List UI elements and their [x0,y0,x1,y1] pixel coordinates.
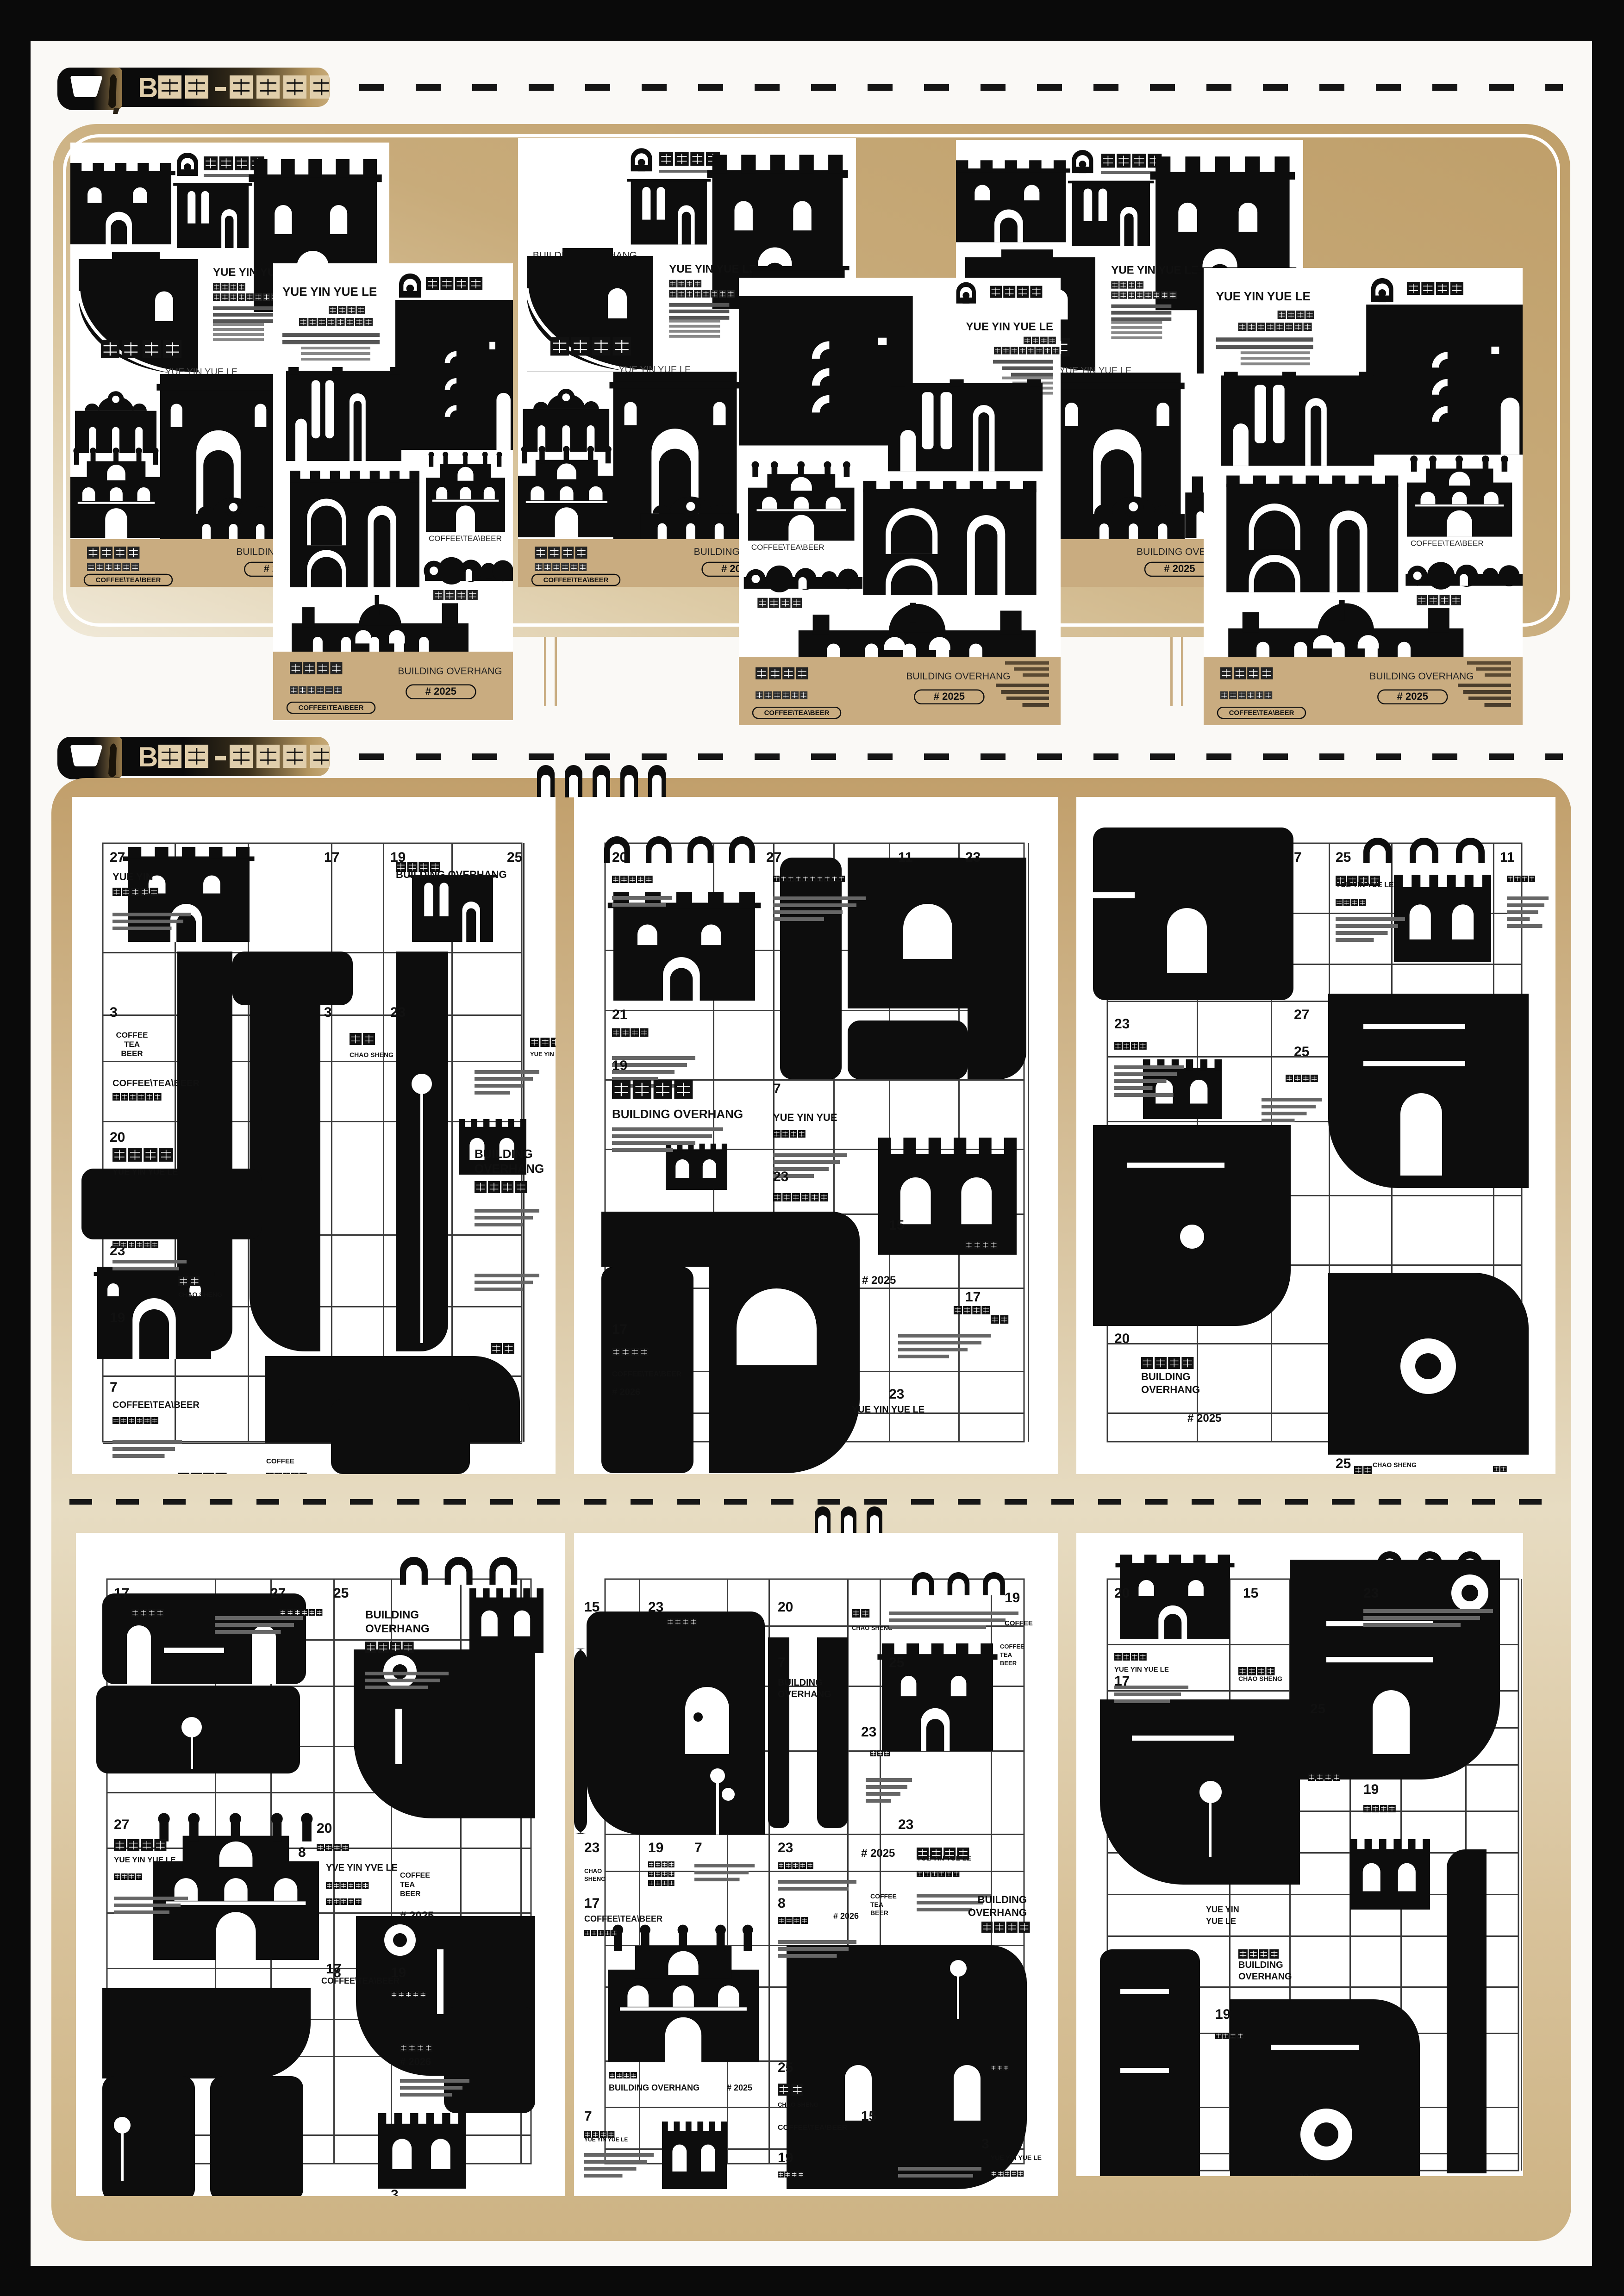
svg-text:20: 20 [1114,1586,1130,1601]
svg-text:COFFEE: COFFEE [116,1031,148,1039]
svg-text:YUE YIN: YUE YIN [112,871,153,883]
svg-text:COFFEE: COFFEE [400,1872,430,1879]
svg-text:YVE YIN YVE LE: YVE YIN YVE LE [326,1863,398,1873]
svg-text:COFFEE\TEA\BEER: COFFEE\TEA\BEER [1411,539,1484,548]
svg-text:COFFEE: COFFEE [1000,1643,1024,1650]
svg-text:7: 7 [584,2109,592,2124]
svg-text:23: 23 [889,1387,904,1402]
svg-text:25: 25 [1336,1456,1351,1471]
svg-text:B: B [138,72,158,103]
svg-text:OVERHANG: OVERHANG [475,1162,544,1176]
svg-text:19: 19 [110,1310,125,1325]
svg-text:23: 23 [861,1724,876,1740]
svg-text:# 2025: # 2025 [1397,691,1428,702]
svg-text:25: 25 [889,1655,904,1670]
svg-text:25: 25 [1310,1701,1325,1717]
svg-text:25: 25 [778,2060,793,2075]
svg-text:COFFEE: COFFEE [870,1892,897,1900]
svg-text:20: 20 [317,1821,332,1836]
svg-text:23: 23 [648,1599,663,1615]
svg-text:OVERHANG: OVERHANG [968,1907,1027,1918]
svg-text:OVERHANG: OVERHANG [1141,1384,1200,1395]
svg-text:COFFEE\TEA\BEER: COFFEE\TEA\BEER [96,576,161,584]
svg-text:COFFEE\TEA\BEER: COFFEE\TEA\BEER [112,1078,200,1089]
svg-text:23: 23 [898,1817,913,1832]
svg-text:27: 27 [114,1817,129,1832]
svg-text:25: 25 [1336,850,1351,865]
svg-text:7: 7 [1294,850,1302,865]
svg-text:OVERHANG: OVERHANG [365,1623,430,1635]
svg-text:23: 23 [1114,1016,1130,1032]
svg-text:# 2025: # 2025 [861,1847,895,1860]
svg-text:25: 25 [333,1586,349,1601]
svg-text:CHAO: CHAO [584,1867,602,1874]
svg-text:23: 23 [773,1169,788,1184]
svg-text:23: 23 [584,1840,600,1855]
svg-text:COFFEE\TEA\BEER: COFFEE\TEA\BEER [543,576,609,584]
svg-text:BUILDING OVERHANG: BUILDING OVERHANG [609,2083,700,2092]
svg-text:23: 23 [1363,1586,1379,1601]
svg-text:# 2025: # 2025 [1289,2172,1320,2176]
svg-text:BUILDING: BUILDING [978,1894,1027,1905]
svg-text:YUE YIN YUE LE: YUE YIN YUE LE [584,2136,628,2143]
svg-text:25: 25 [507,850,522,865]
svg-text:15: 15 [1243,1586,1258,1601]
svg-text:COFFEE\TEA\BEER: COFFEE\TEA\BEER [584,1914,662,1923]
svg-text:17: 17 [324,850,339,865]
svg-text:3: 3 [391,2187,399,2196]
svg-text:SHENG: SHENG [584,1875,606,1882]
svg-text:YUE YIN YUE LE: YUE YIN YUE LE [530,1051,556,1058]
svg-text:CHAO SHENG: CHAO SHENG [1373,1461,1417,1468]
svg-text:YUE YIN YUE LE: YUE YIN YUE LE [1216,289,1311,303]
svg-text:YUE LE: YUE LE [1206,1916,1236,1926]
svg-text:23: 23 [965,850,981,865]
svg-text:7: 7 [778,1655,786,1670]
svg-text:TEA: TEA [400,1881,415,1889]
svg-text:19: 19 [778,2150,793,2165]
svg-text:17: 17 [965,1289,981,1305]
svg-text:COFFEE\TEA\BEER: COFFEE\TEA\BEER [299,704,364,712]
svg-text:YUE YIN YUE LE: YUE YIN YUE LE [1114,1666,1169,1674]
svg-text:3: 3 [324,1005,332,1020]
svg-text:YUE YIN YUE LE: YUE YIN YUE LE [991,2154,1042,2161]
svg-text:BEER: BEER [400,1890,421,1898]
svg-text:COFFEE\TEA\BEER: COFFEE\TEA\BEER [112,1400,200,1410]
svg-text:20: 20 [1114,1331,1130,1346]
svg-text:CHAO SHENG: CHAO SHENG [350,1051,394,1058]
svg-text:20: 20 [778,1599,793,1615]
svg-text:# 2025: # 2025 [1187,1412,1221,1425]
svg-text:YUE YIN YUE LE: YUE YIN YUE LE [852,1405,924,1415]
svg-text:3: 3 [981,2136,989,2152]
svg-text:27: 27 [1294,1007,1309,1022]
svg-text:BUILDING: BUILDING [365,1609,419,1621]
svg-text:11: 11 [1500,850,1515,865]
svg-text:B: B [138,741,158,772]
svg-text:BUILDING: BUILDING [475,1147,533,1161]
svg-text:BUILDING: BUILDING [1141,1371,1190,1382]
svg-text:BUILDING OVERHANG: BUILDING OVERHANG [398,666,502,677]
svg-text:27: 27 [270,1586,286,1601]
svg-text:19: 19 [391,1965,406,1980]
svg-text:OVERHANG: OVERHANG [1238,1972,1292,1982]
svg-text:COFFEE\TEA\BEER: COFFEE\TEA\BEER [751,543,824,552]
svg-text:BEER: BEER [121,1049,143,1058]
svg-text:YUE YIN YUE LE: YUE YIN YUE LE [917,1854,971,1862]
svg-text:YUE YIN YUE LE: YUE YIN YUE LE [112,1167,178,1176]
svg-text:CHAO SHENG: CHAO SHENG [178,1291,222,1298]
svg-text:25: 25 [1294,1044,1309,1059]
svg-text:YUE YIN YUE LE: YUE YIN YUE LE [1111,264,1199,277]
svg-text:YUE YIN YUE LE: YUE YIN YUE LE [114,1855,176,1864]
svg-text:YUE YIN YUE LE: YUE YIN YUE LE [1336,881,1394,889]
svg-text:BUILDING: BUILDING [1238,1960,1283,1970]
svg-text:# 2026: # 2026 [612,1387,640,1397]
svg-text:27: 27 [766,850,781,865]
svg-text:20: 20 [110,1130,125,1145]
svg-text:COFFEE\TEA\BEER: COFFEE\TEA\BEER [1229,709,1294,717]
svg-text:8: 8 [778,1896,786,1911]
svg-text:8: 8 [298,1845,306,1860]
svg-text:17: 17 [584,1896,600,1911]
svg-text:CHAO SHENG: CHAO SHENG [852,1624,893,1631]
svg-text:BUILDING OVERHANG: BUILDING OVERHANG [612,1107,743,1121]
svg-text:# 2025: # 2025 [727,2083,752,2092]
svg-text:3: 3 [110,1005,118,1020]
svg-text:15: 15 [584,1599,600,1615]
svg-text:COFFEE\TEA\BEER: COFFEE\TEA\BEER [764,709,830,717]
svg-text:OVERHANG: OVERHANG [778,1689,831,1699]
svg-text:BUILDING OVERHANG: BUILDING OVERHANG [1369,671,1474,682]
svg-text:CHAO SHENG: CHAO SHENG [778,2101,818,2108]
svg-text:15: 15 [889,1218,904,1233]
svg-text:YUE YIN YUE: YUE YIN YUE [773,1112,837,1123]
svg-text:BEER: BEER [1000,1660,1017,1667]
svg-text:TEA: TEA [870,1901,883,1908]
svg-text:20: 20 [612,850,627,865]
svg-text:17: 17 [612,1322,627,1337]
svg-text:23: 23 [778,1840,793,1855]
svg-text:8: 8 [333,1965,341,1980]
svg-text:COFFEE: COFFEE [266,1457,294,1465]
svg-text:CHAO SHENG: CHAO SHENG [1238,1675,1282,1682]
svg-text:7: 7 [773,1081,781,1096]
svg-text:COFFEE: COFFEE [1005,1619,1033,1627]
svg-text:TEA: TEA [124,1040,140,1049]
svg-text:# 2025: # 2025 [934,691,965,702]
svg-text:11: 11 [898,850,913,865]
svg-text:27: 27 [110,850,125,865]
svg-text:COFFEE\TEA\BEER: COFFEE\TEA\BEER [429,534,502,543]
svg-text:# 2026: # 2026 [833,1911,859,1921]
svg-text:7: 7 [110,1380,118,1395]
svg-text:# 2025: # 2025 [1164,563,1195,574]
svg-text:7: 7 [694,1840,702,1855]
svg-text:23: 23 [390,1005,406,1020]
svg-text:19: 19 [612,1058,627,1073]
svg-text:COFFEE\TEA\BEER: COFFEE\TEA\BEER [778,2124,848,2132]
svg-text:YUE YIN: YUE YIN [1206,1905,1239,1914]
svg-text:# 2026: # 2026 [400,2056,431,2067]
svg-text:# 2025: # 2025 [400,1910,434,1922]
svg-text:BUILDING: BUILDING [778,1678,823,1688]
svg-text:TEA: TEA [1000,1651,1012,1658]
svg-text:19: 19 [1215,2007,1230,2022]
svg-text:YUE YIN YUE LE: YUE YIN YUE LE [282,285,377,299]
svg-text:15: 15 [861,2109,876,2124]
svg-text:YUE YIN YUE LE: YUE YIN YUE LE [966,321,1053,333]
svg-text:COFFEE\TEA\BEER: COFFEE\TEA\BEER [612,1370,682,1378]
svg-text:YUE YIN YUE LE: YUE YIN YUE LE [669,263,756,275]
svg-text:# 2025: # 2025 [862,1274,896,1287]
svg-text:# 2025: # 2025 [425,685,456,697]
svg-text:BEER: BEER [870,1909,888,1916]
svg-text:17: 17 [114,1586,129,1601]
svg-text:21: 21 [612,1007,627,1022]
svg-text:19: 19 [1005,1590,1020,1605]
svg-text:BUILDING OVERHANG: BUILDING OVERHANG [906,671,1010,682]
svg-text:19: 19 [1363,1782,1379,1797]
svg-text:19: 19 [648,1840,663,1855]
svg-text:17: 17 [1114,1674,1130,1689]
